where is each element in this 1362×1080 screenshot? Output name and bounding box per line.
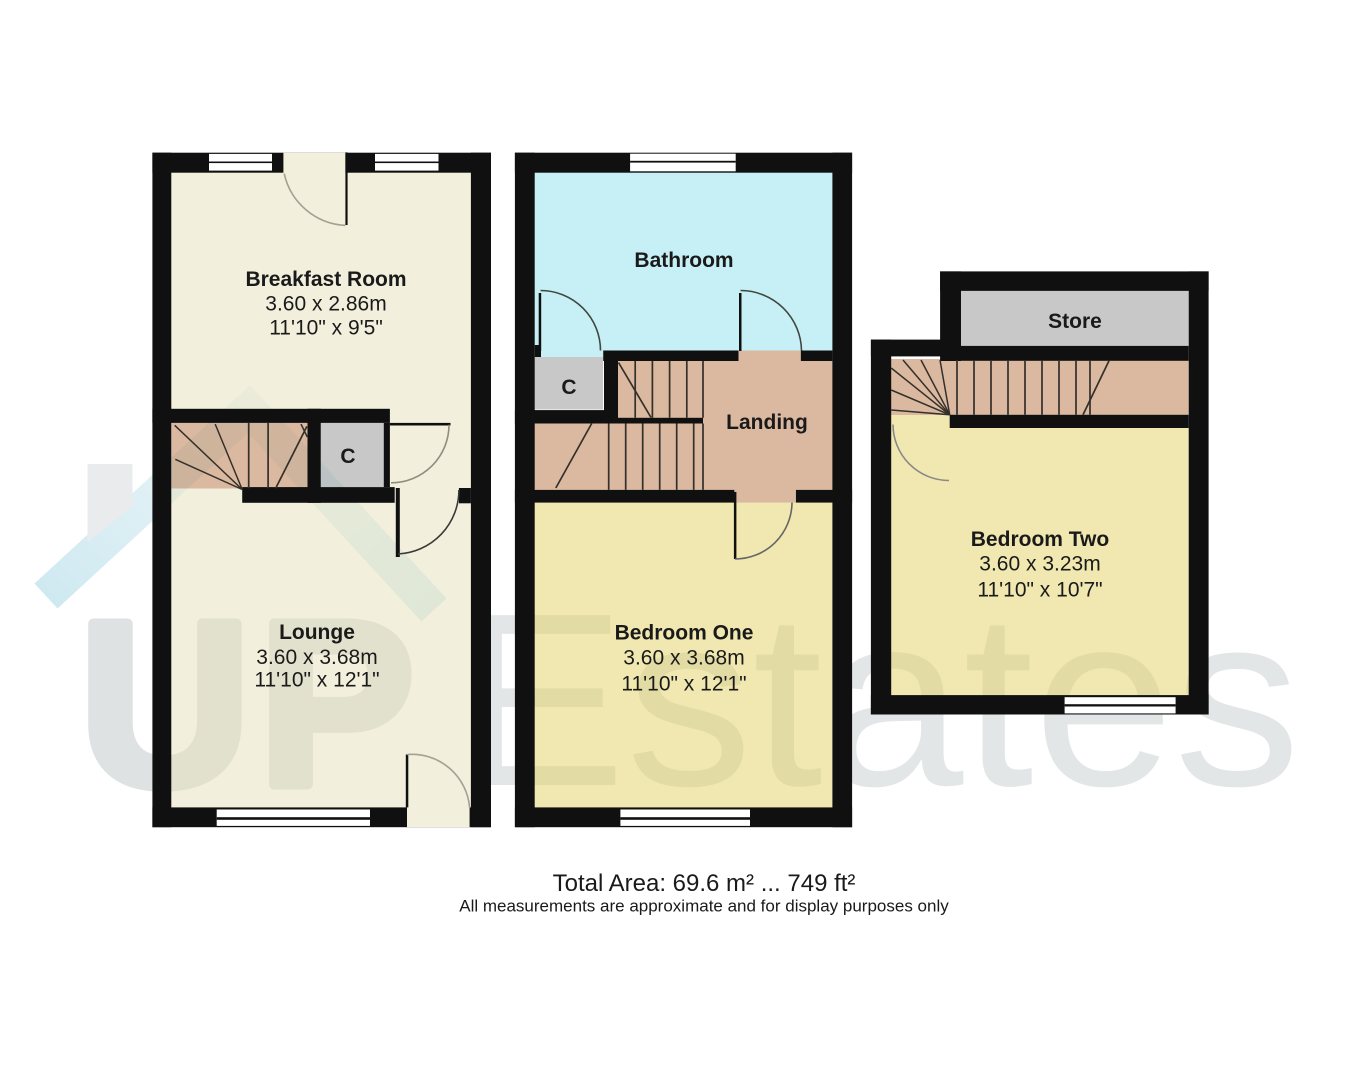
svg-text:C: C <box>340 445 355 468</box>
svg-text:Bathroom: Bathroom <box>634 249 733 272</box>
svg-text:Bedroom One: Bedroom One <box>615 622 754 645</box>
svg-text:3.60 x 3.68m: 3.60 x 3.68m <box>256 646 377 669</box>
svg-text:Lounge: Lounge <box>279 621 355 644</box>
svg-text:Bedroom Two: Bedroom Two <box>971 528 1109 551</box>
svg-text:Landing: Landing <box>726 411 808 434</box>
svg-text:C: C <box>561 376 576 399</box>
svg-text:3.60 x 3.23m: 3.60 x 3.23m <box>979 553 1100 576</box>
svg-text:All measurements are approxima: All measurements are approximate and for… <box>459 897 949 916</box>
svg-text:Breakfast Room: Breakfast Room <box>245 268 406 291</box>
svg-text:11'10" x 12'1": 11'10" x 12'1" <box>254 669 379 692</box>
svg-text:11'10" x 9'5": 11'10" x 9'5" <box>269 317 383 340</box>
svg-text:Store: Store <box>1048 310 1102 333</box>
svg-text:Total Area: 69.6 m² ... 749 ft: Total Area: 69.6 m² ... 749 ft² <box>553 870 856 897</box>
svg-text:3.60 x 2.86m: 3.60 x 2.86m <box>265 293 386 316</box>
svg-text:11'10" x 12'1": 11'10" x 12'1" <box>621 673 746 696</box>
svg-text:11'10" x 10'7": 11'10" x 10'7" <box>977 579 1102 602</box>
svg-text:3.60 x 3.68m: 3.60 x 3.68m <box>623 647 744 670</box>
